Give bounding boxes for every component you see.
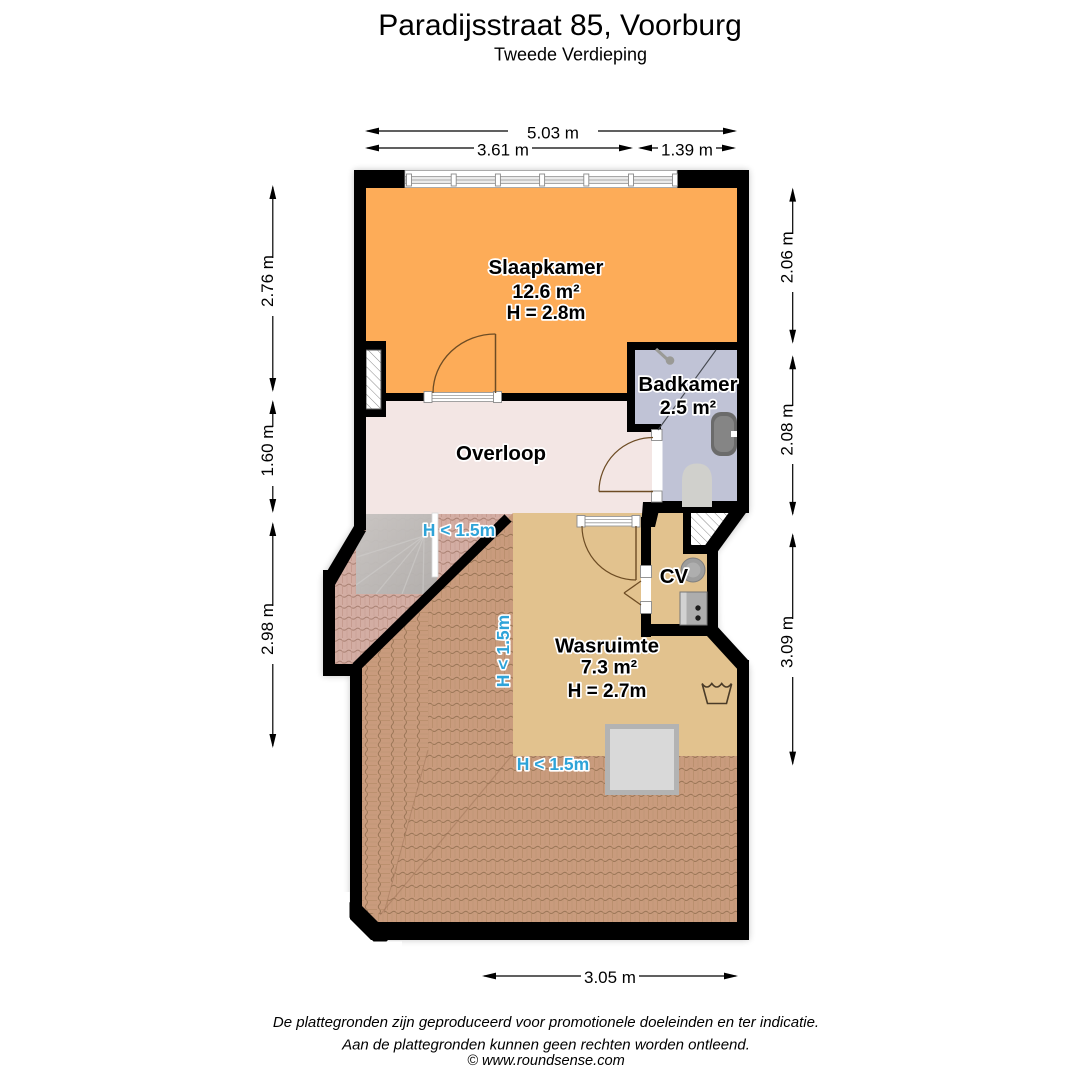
svg-text:2.5 m²: 2.5 m² bbox=[660, 397, 717, 419]
svg-text:H < 1.5m: H < 1.5m bbox=[517, 754, 589, 774]
svg-text:2.98 m: 2.98 m bbox=[258, 603, 277, 655]
svg-text:7.3 m²: 7.3 m² bbox=[581, 657, 638, 679]
svg-text:De plattegronden zijn geproduc: De plattegronden zijn geproduceerd voor … bbox=[273, 1014, 819, 1031]
svg-text:H < 1.5m: H < 1.5m bbox=[493, 615, 513, 687]
svg-text:Wasruimte: Wasruimte bbox=[555, 635, 659, 658]
svg-text:2.06 m: 2.06 m bbox=[778, 231, 797, 283]
svg-text:2.76 m: 2.76 m bbox=[258, 255, 277, 307]
svg-text:H < 1.5m: H < 1.5m bbox=[423, 520, 495, 540]
svg-text:© www.roundsense.com: © www.roundsense.com bbox=[467, 1053, 625, 1069]
svg-text:Slaapkamer: Slaapkamer bbox=[488, 256, 603, 279]
svg-text:12.6 m²: 12.6 m² bbox=[512, 281, 580, 303]
svg-text:H = 2.7m: H = 2.7m bbox=[568, 681, 647, 702]
svg-text:Overloop: Overloop bbox=[456, 442, 546, 465]
svg-text:Aan de plattegronden kunnen ge: Aan de plattegronden kunnen geen rechten… bbox=[341, 1037, 750, 1054]
svg-text:1.60 m: 1.60 m bbox=[258, 425, 277, 477]
svg-text:1.39 m: 1.39 m bbox=[661, 141, 713, 160]
svg-text:Paradijsstraat 85, Voorburg: Paradijsstraat 85, Voorburg bbox=[378, 9, 742, 42]
svg-text:Tweede Verdieping: Tweede Verdieping bbox=[494, 45, 647, 65]
svg-text:3.05 m: 3.05 m bbox=[584, 968, 636, 987]
svg-text:H = 2.8m: H = 2.8m bbox=[507, 303, 586, 324]
svg-text:5.03 m: 5.03 m bbox=[527, 124, 579, 143]
svg-text:Badkamer: Badkamer bbox=[638, 373, 737, 396]
svg-text:3.61 m: 3.61 m bbox=[477, 141, 529, 160]
svg-text:2.08 m: 2.08 m bbox=[778, 404, 797, 456]
svg-text:3.09 m: 3.09 m bbox=[778, 616, 797, 668]
svg-text:CV: CV bbox=[660, 565, 689, 588]
